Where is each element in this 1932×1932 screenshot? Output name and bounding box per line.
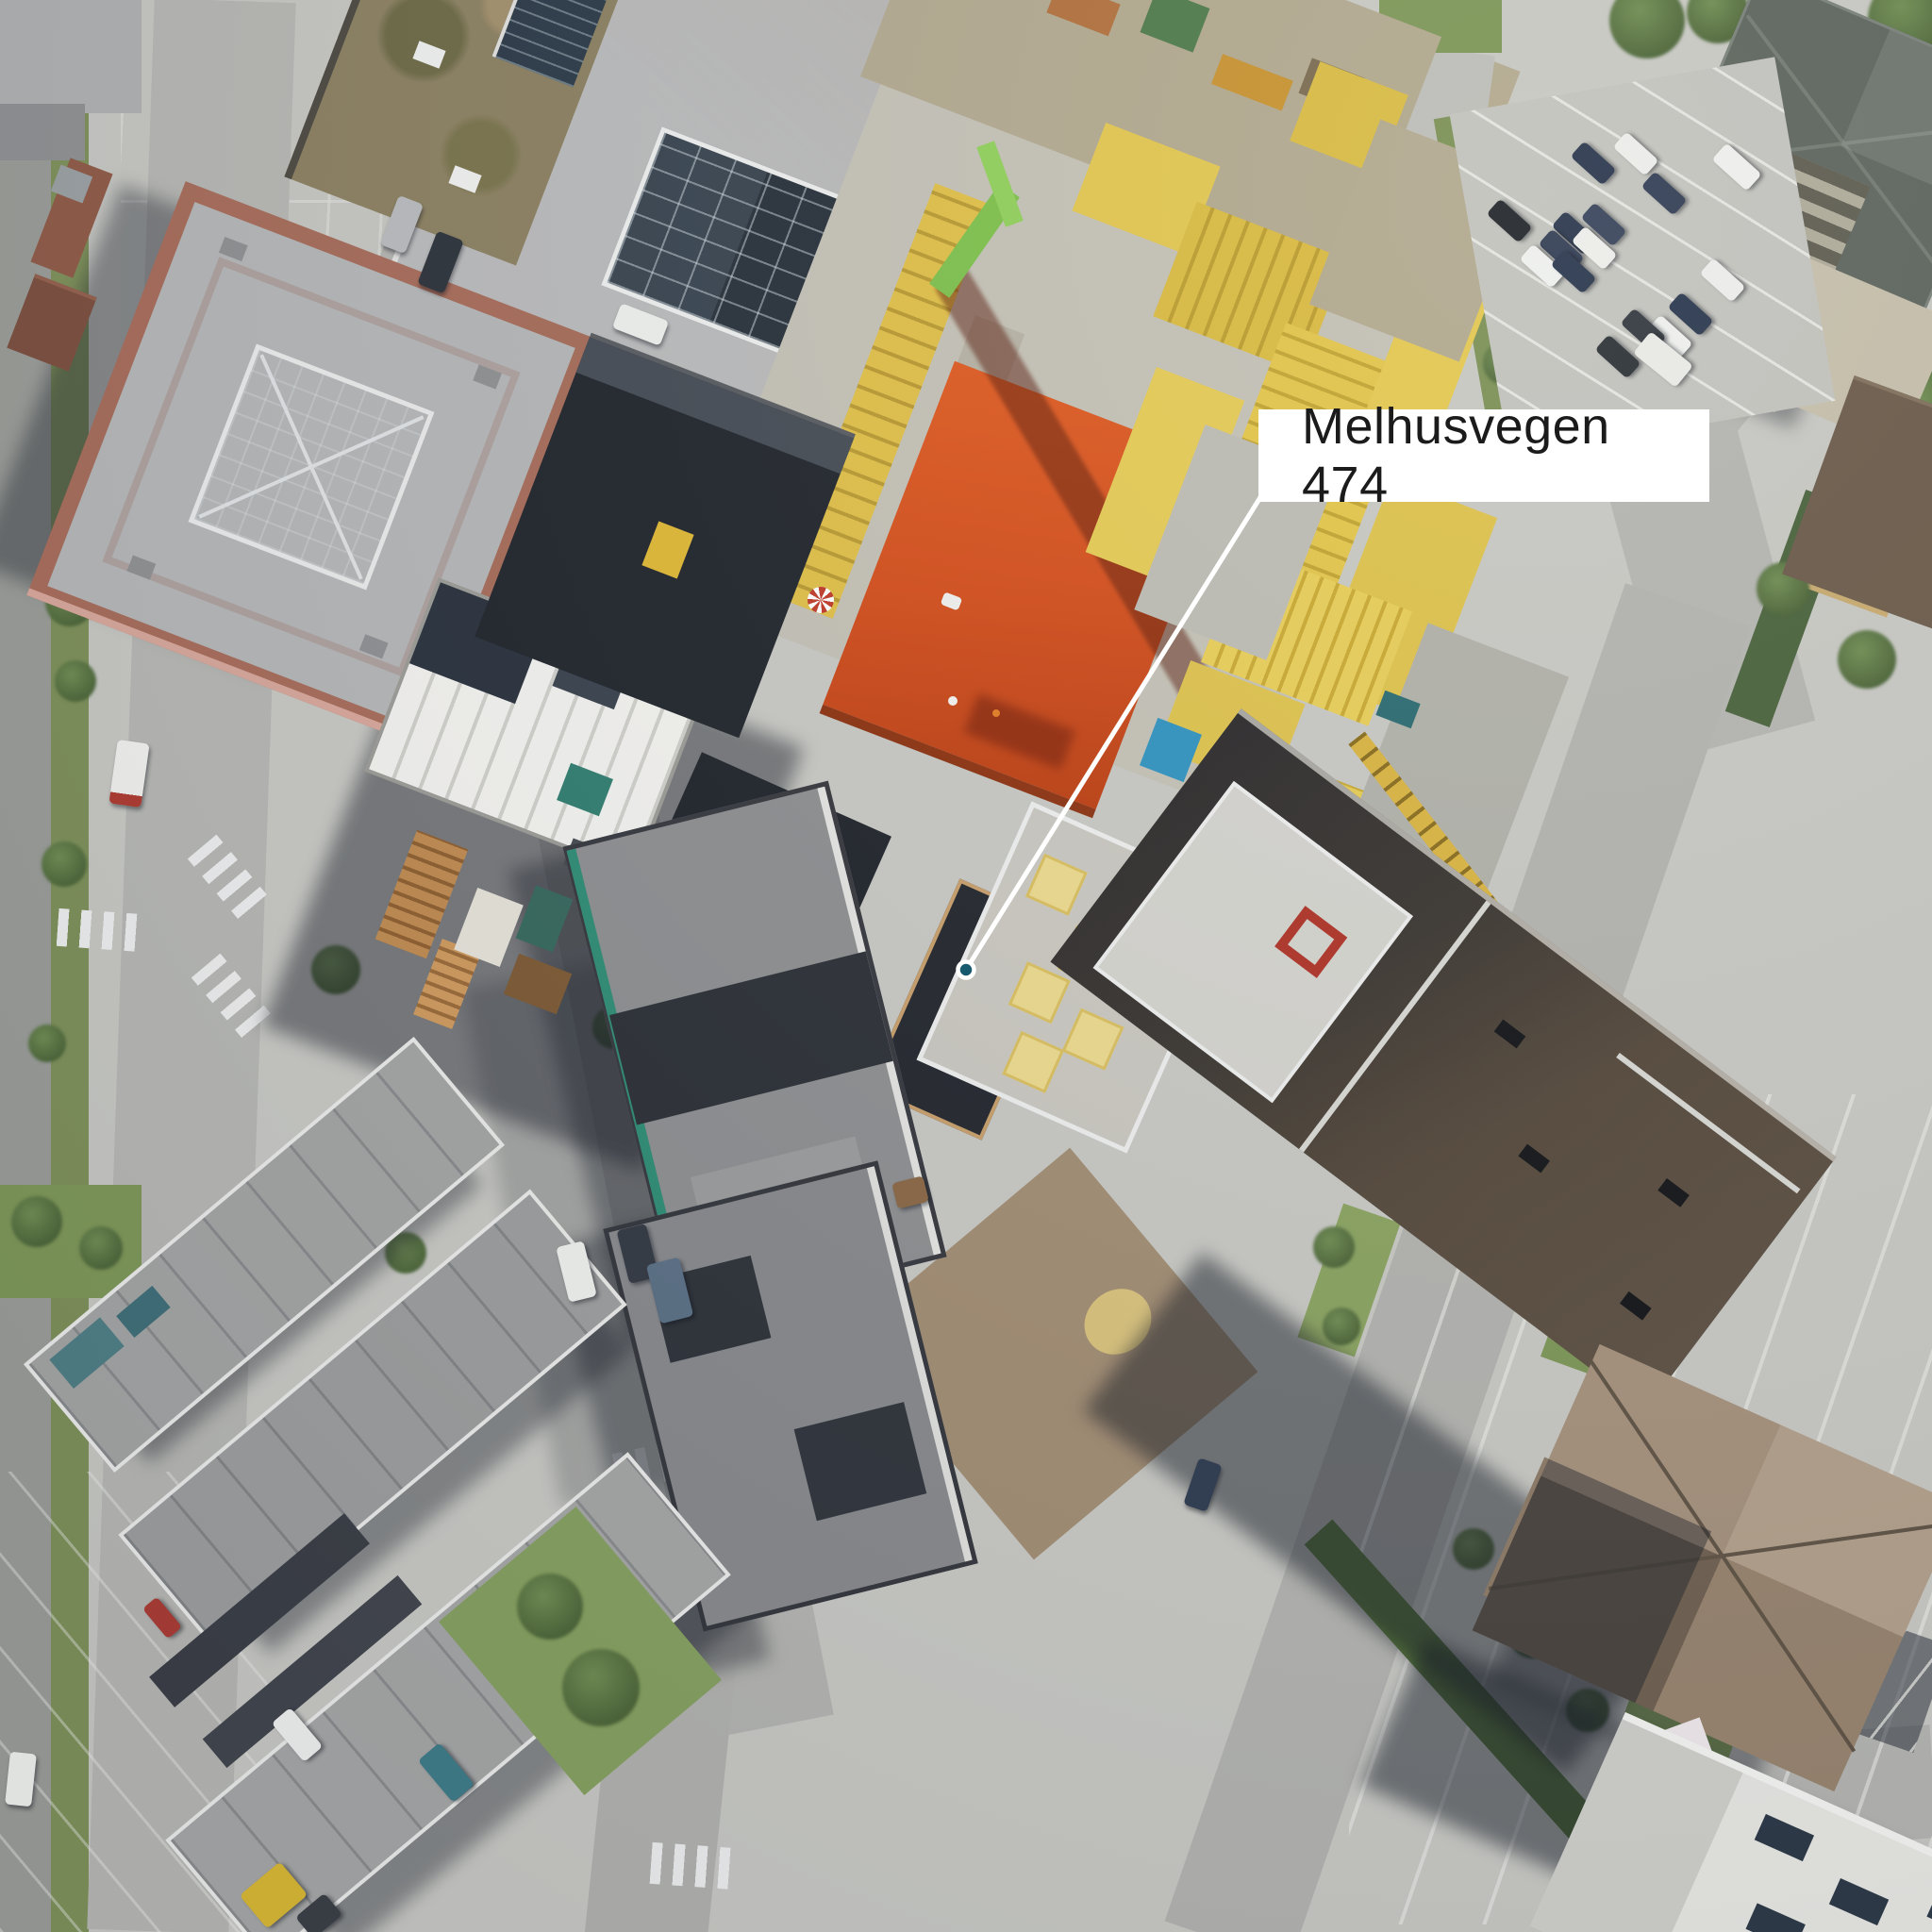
address-label[interactable]: Melhusvegen 474 <box>1258 409 1709 502</box>
address-label-text: Melhusvegen 474 <box>1302 397 1709 514</box>
aerial-map-canvas[interactable]: Melhusvegen 474 <box>0 0 1932 1932</box>
leader-line <box>966 494 1262 970</box>
location-marker-dot[interactable] <box>958 962 974 978</box>
annotation-overlay <box>0 0 1932 1932</box>
